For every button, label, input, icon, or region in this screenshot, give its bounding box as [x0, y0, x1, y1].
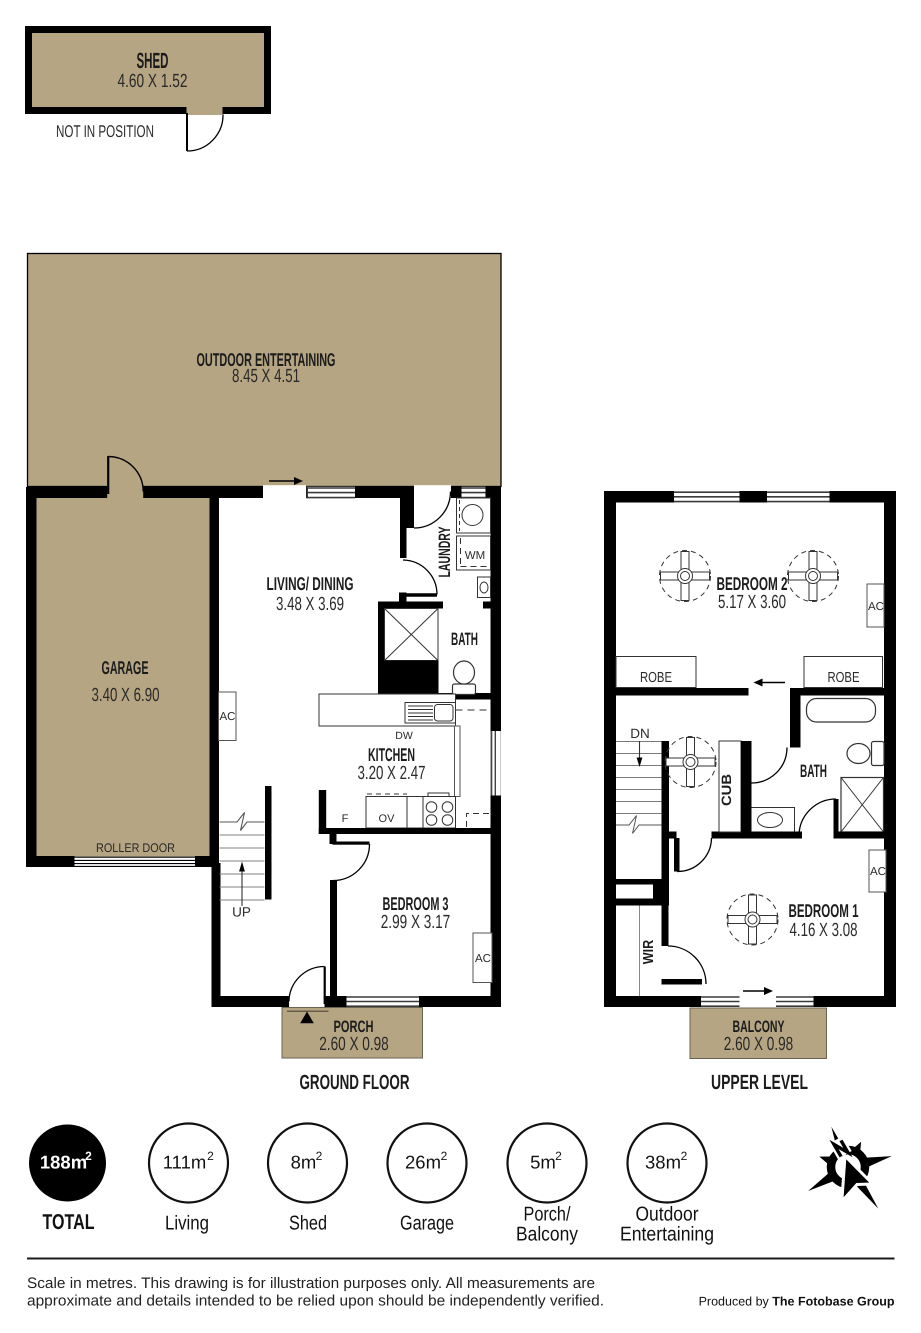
svg-text:Shed: Shed	[289, 1213, 327, 1235]
svg-text:F: F	[342, 813, 349, 825]
svg-text:AC: AC	[220, 711, 236, 723]
svg-text:BATH: BATH	[800, 761, 827, 781]
svg-text:CUB: CUB	[719, 774, 734, 806]
svg-text:SHED: SHED	[137, 48, 169, 73]
svg-text:TOTAL: TOTAL	[43, 1210, 95, 1234]
svg-text:8.45 X 4.51: 8.45 X 4.51	[232, 366, 300, 387]
svg-text:188m: 188m	[40, 1152, 87, 1173]
svg-text:OV: OV	[379, 813, 396, 825]
svg-text:38m: 38m	[645, 1152, 681, 1173]
svg-text:3.20 X 2.47: 3.20 X 2.47	[358, 763, 426, 784]
svg-text:DW: DW	[395, 730, 413, 742]
svg-text:LAUNDRY: LAUNDRY	[436, 527, 454, 578]
svg-text:BEDROOM 2: BEDROOM 2	[717, 573, 788, 594]
svg-text:AC: AC	[870, 866, 886, 878]
svg-text:26m: 26m	[405, 1152, 441, 1173]
svg-text:LIVING/ DINING: LIVING/ DINING	[267, 573, 354, 594]
svg-text:2.99 X 3.17: 2.99 X 3.17	[381, 912, 451, 933]
svg-text:Porch/: Porch/	[524, 1204, 571, 1226]
svg-text:BATH: BATH	[451, 629, 478, 649]
svg-text:GARAGE: GARAGE	[102, 657, 149, 678]
svg-text:ROBE: ROBE	[640, 670, 672, 686]
svg-text:Scale in metres. This drawing: Scale in metres. This drawing is for ill…	[27, 1275, 595, 1292]
svg-text:WIR: WIR	[641, 939, 657, 964]
svg-text:Produced by The Fotobase Group: Produced by The Fotobase Group	[699, 1295, 895, 1309]
svg-text:UPPER LEVEL: UPPER LEVEL	[711, 1071, 808, 1094]
svg-text:DN: DN	[630, 726, 650, 741]
svg-text:5.17 X 3.60: 5.17 X 3.60	[718, 592, 786, 613]
svg-text:8m: 8m	[291, 1152, 317, 1173]
svg-text:3.40 X 6.90: 3.40 X 6.90	[92, 685, 160, 706]
svg-text:Living: Living	[165, 1213, 209, 1235]
svg-text:111m: 111m	[163, 1152, 207, 1173]
svg-text:Balcony: Balcony	[516, 1224, 578, 1246]
svg-text:KITCHEN: KITCHEN	[368, 744, 415, 765]
svg-text:2.60 X 0.98: 2.60 X 0.98	[319, 1034, 389, 1055]
svg-text:NOT IN POSITION: NOT IN POSITION	[56, 122, 154, 141]
svg-text:Garage: Garage	[400, 1213, 454, 1235]
svg-text:2: 2	[555, 1149, 562, 1163]
svg-text:2: 2	[681, 1149, 688, 1163]
svg-text:UP: UP	[232, 905, 251, 920]
svg-text:GROUND FLOOR: GROUND FLOOR	[300, 1071, 410, 1094]
svg-text:2: 2	[316, 1149, 323, 1163]
svg-text:Entertaining: Entertaining	[620, 1224, 714, 1246]
svg-text:AC: AC	[868, 601, 884, 613]
svg-text:ROLLER DOOR: ROLLER DOOR	[96, 841, 175, 855]
svg-text:approximate and details intend: approximate and details intended to be r…	[27, 1293, 604, 1310]
svg-text:ROBE: ROBE	[828, 670, 860, 686]
svg-text:4.16 X 3.08: 4.16 X 3.08	[790, 920, 858, 941]
svg-text:BEDROOM 3: BEDROOM 3	[383, 893, 449, 914]
svg-text:2: 2	[85, 1149, 92, 1163]
svg-text:WM: WM	[465, 550, 485, 562]
svg-text:2.60 X 0.98: 2.60 X 0.98	[724, 1034, 794, 1055]
svg-text:3.48 X 3.69: 3.48 X 3.69	[276, 594, 344, 615]
svg-text:5m: 5m	[530, 1152, 556, 1173]
svg-text:2: 2	[207, 1149, 214, 1163]
svg-text:AC: AC	[475, 953, 491, 965]
svg-text:2: 2	[441, 1149, 448, 1163]
svg-text:Outdoor: Outdoor	[636, 1204, 699, 1226]
svg-text:BEDROOM 1: BEDROOM 1	[789, 900, 859, 921]
svg-text:4.60 X 1.52: 4.60 X 1.52	[118, 71, 188, 92]
